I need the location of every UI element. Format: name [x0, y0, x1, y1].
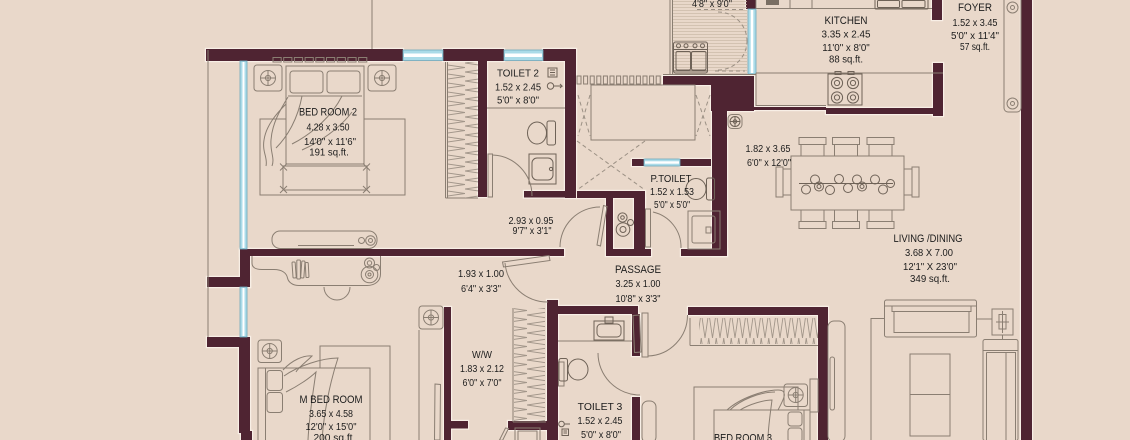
svg-text:11'0" x 8'0": 11'0" x 8'0": [822, 43, 870, 54]
svg-text:3.25 x 1.00: 3.25 x 1.00: [616, 279, 662, 290]
svg-text:12'0" x 15'0": 12'0" x 15'0": [306, 422, 357, 433]
svg-text:9'7" x 3'1": 9'7" x 3'1": [513, 226, 552, 237]
svg-text:1.52 x 2.45: 1.52 x 2.45: [578, 416, 624, 427]
svg-text:W/W: W/W: [472, 350, 492, 361]
svg-text:6'0" x 7'0": 6'0" x 7'0": [463, 378, 502, 389]
svg-text:6'0" x 12'0": 6'0" x 12'0": [747, 158, 791, 169]
svg-text:57 sq.ft.: 57 sq.ft.: [960, 42, 990, 53]
svg-text:BED ROOM 2: BED ROOM 2: [299, 107, 357, 119]
svg-text:TOILET 2: TOILET 2: [497, 69, 539, 80]
svg-text:3.35 x 2.45: 3.35 x 2.45: [822, 30, 872, 41]
svg-text:PASSAGE: PASSAGE: [615, 264, 661, 276]
svg-text:4'8" x 9'0": 4'8" x 9'0": [692, 0, 732, 10]
svg-text:3.68 X 7.00: 3.68 X 7.00: [905, 248, 954, 259]
svg-text:6'4" x 3'3": 6'4" x 3'3": [461, 284, 501, 295]
svg-text:5'0" x 8'0": 5'0" x 8'0": [497, 96, 540, 107]
svg-text:191 sq.ft.: 191 sq.ft.: [309, 148, 349, 159]
svg-text:4.28 x 3.50: 4.28 x 3.50: [307, 123, 350, 134]
svg-text:88 sq.ft.: 88 sq.ft.: [829, 55, 863, 66]
svg-text:1.82 x 3.65: 1.82 x 3.65: [746, 144, 792, 155]
svg-text:LIVING /DINING: LIVING /DINING: [894, 233, 963, 245]
svg-text:TOILET 3: TOILET 3: [578, 402, 623, 413]
svg-text:3.65 x 4.58: 3.65 x 4.58: [309, 409, 353, 420]
svg-text:14'0" x 11'6": 14'0" x 11'6": [304, 137, 356, 148]
svg-text:5'0" x 8'0": 5'0" x 8'0": [581, 430, 621, 440]
svg-text:P.TOILET: P.TOILET: [651, 174, 693, 185]
svg-text:1.52 x 1.53: 1.52 x 1.53: [650, 187, 694, 198]
svg-text:1.93 x 1.00: 1.93 x 1.00: [458, 269, 505, 280]
svg-text:200 sq.ft: 200 sq.ft: [314, 433, 353, 440]
svg-text:KITCHEN: KITCHEN: [825, 15, 868, 27]
svg-text:BED ROOM 3: BED ROOM 3: [714, 433, 772, 440]
svg-text:1.52 x 2.45: 1.52 x 2.45: [495, 83, 542, 94]
svg-text:1.52 x 3.45: 1.52 x 3.45: [953, 18, 999, 29]
svg-text:FOYER: FOYER: [958, 2, 992, 14]
svg-text:M BED ROOM: M BED ROOM: [300, 394, 363, 406]
svg-text:1.83 x 2.12: 1.83 x 2.12: [460, 364, 504, 375]
svg-text:10'8" x 3'3": 10'8" x 3'3": [616, 294, 661, 305]
svg-text:5'0" x 5'0": 5'0" x 5'0": [654, 200, 690, 211]
svg-text:5'0" x 11'4": 5'0" x 11'4": [951, 31, 1000, 42]
svg-text:349 sq.ft.: 349 sq.ft.: [910, 274, 950, 285]
svg-text:12'1" X 23'0": 12'1" X 23'0": [903, 262, 958, 273]
